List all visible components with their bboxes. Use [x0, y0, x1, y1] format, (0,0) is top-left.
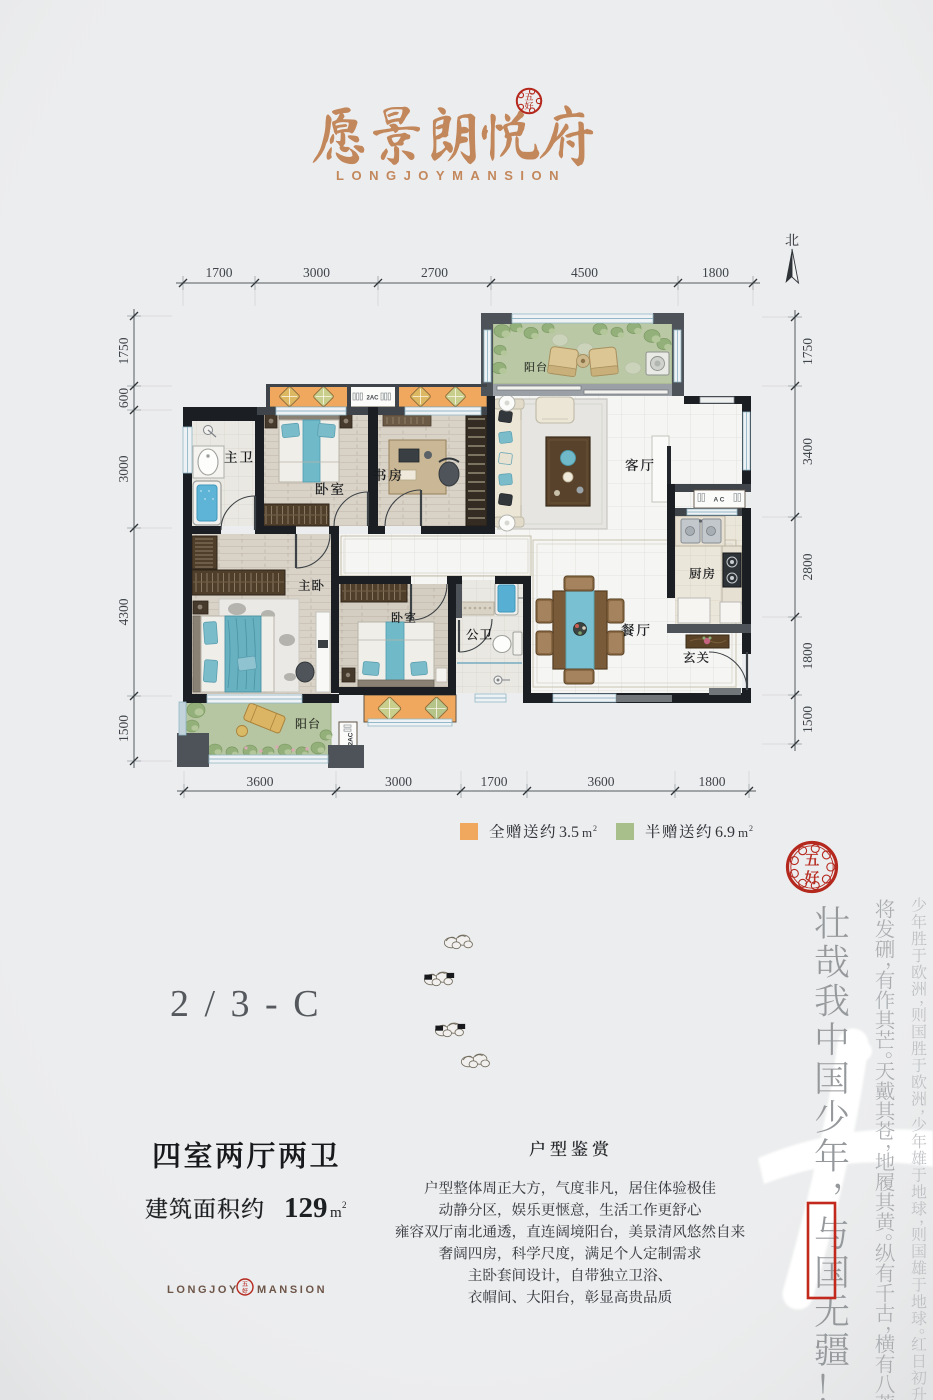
svg-text:1700: 1700: [481, 774, 508, 789]
svg-text:1700: 1700: [206, 265, 233, 280]
svg-text:MANSION: MANSION: [257, 1284, 327, 1296]
svg-text:1500: 1500: [800, 706, 815, 733]
svg-text:129: 129: [284, 1192, 328, 1224]
svg-text:3000: 3000: [116, 455, 131, 482]
svg-text:1500: 1500: [116, 715, 131, 742]
svg-text:2: 2: [342, 1200, 347, 1210]
svg-text:2AC: 2AC: [366, 396, 379, 402]
svg-text:m: m: [582, 825, 592, 840]
svg-text:LONGJOYMANSION: LONGJOYMANSION: [336, 168, 569, 183]
svg-text:1750: 1750: [116, 337, 131, 364]
svg-text:2700: 2700: [421, 265, 448, 280]
svg-text:1800: 1800: [800, 642, 815, 669]
svg-text:2: 2: [749, 824, 753, 833]
svg-text:3400: 3400: [800, 438, 815, 465]
svg-text:2AC: 2AC: [348, 732, 355, 745]
svg-text:2: 2: [593, 824, 597, 833]
svg-text:6.9: 6.9: [715, 824, 735, 841]
svg-text:3000: 3000: [303, 265, 330, 280]
svg-text:m: m: [330, 1205, 342, 1221]
svg-text:m: m: [738, 825, 748, 840]
svg-text:2800: 2800: [800, 553, 815, 580]
svg-text:4500: 4500: [571, 265, 598, 280]
svg-text:600: 600: [116, 388, 131, 409]
svg-text:2 / 3 - C: 2 / 3 - C: [170, 983, 322, 1025]
svg-text:A C: A C: [714, 497, 725, 504]
svg-text:3600: 3600: [247, 774, 274, 789]
svg-text:1750: 1750: [800, 338, 815, 365]
svg-text:LONGJOY: LONGJOY: [167, 1284, 239, 1296]
svg-text:3000: 3000: [385, 774, 412, 789]
svg-text:1800: 1800: [699, 774, 726, 789]
svg-text:3.5: 3.5: [559, 824, 579, 841]
svg-text:4300: 4300: [116, 598, 131, 625]
svg-text:3600: 3600: [588, 774, 615, 789]
svg-text:1800: 1800: [702, 265, 729, 280]
